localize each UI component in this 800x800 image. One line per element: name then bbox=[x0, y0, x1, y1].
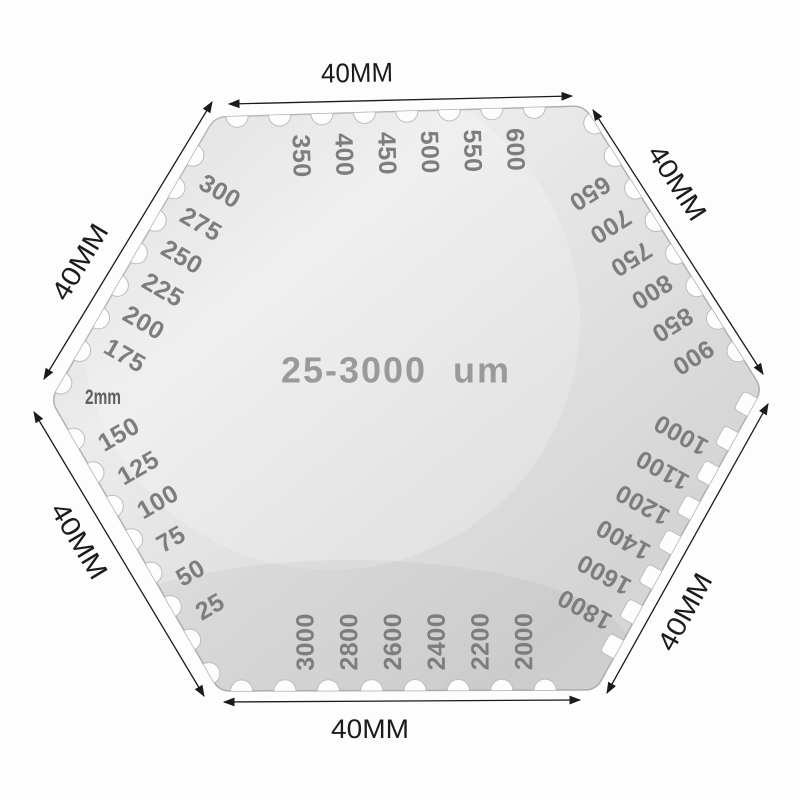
scale-value-label: 600 bbox=[501, 128, 530, 172]
tooth-notch bbox=[163, 177, 185, 199]
scale-value-label: 2600 bbox=[379, 613, 407, 671]
tooth-notch bbox=[686, 275, 708, 297]
tooth-notch bbox=[140, 562, 162, 584]
scale-value-label: 3000 bbox=[291, 613, 319, 671]
dimension-label: 40MM bbox=[46, 218, 115, 305]
tooth-notch bbox=[159, 596, 181, 618]
product-photo-canvas: 3504004505005506006507007508008509001000… bbox=[0, 0, 800, 800]
tooth-notch bbox=[274, 680, 296, 702]
tooth-notch bbox=[707, 307, 729, 329]
dimension-label: 40MM bbox=[652, 568, 719, 656]
tooth-notch bbox=[69, 340, 91, 362]
dimension-arrow bbox=[224, 700, 580, 702]
scale-value-label: 2400 bbox=[423, 613, 451, 671]
scale-value-label: 2000 bbox=[510, 613, 538, 671]
plate-thickness-label: 2mm bbox=[85, 386, 121, 409]
tooth-notch bbox=[317, 680, 339, 702]
dimension-arrow bbox=[229, 96, 572, 104]
scale-value-label: 2200 bbox=[466, 613, 494, 671]
tooth-notch bbox=[88, 307, 110, 329]
wet-film-comb-gauge-photo: 3504004505005506006507007508008509001000… bbox=[0, 0, 800, 800]
scale-value-label: 450 bbox=[372, 131, 401, 175]
scale-value-label: 350 bbox=[287, 134, 316, 178]
scale-value-label: 2800 bbox=[335, 613, 363, 671]
dimension-label: 40MM bbox=[331, 714, 409, 744]
tooth-notch bbox=[231, 680, 253, 702]
scale-value-label: 500 bbox=[415, 130, 444, 174]
dimension-label: 40MM bbox=[45, 497, 114, 584]
measuring-range-label: 25-3000 um bbox=[281, 350, 511, 391]
tooth-notch bbox=[182, 144, 204, 166]
scale-value-label: 550 bbox=[458, 129, 487, 173]
scale-value-label: 400 bbox=[329, 133, 358, 177]
tooth-notch bbox=[584, 112, 606, 134]
tooth-notch bbox=[198, 663, 220, 685]
dimension-label: 40MM bbox=[321, 57, 394, 88]
